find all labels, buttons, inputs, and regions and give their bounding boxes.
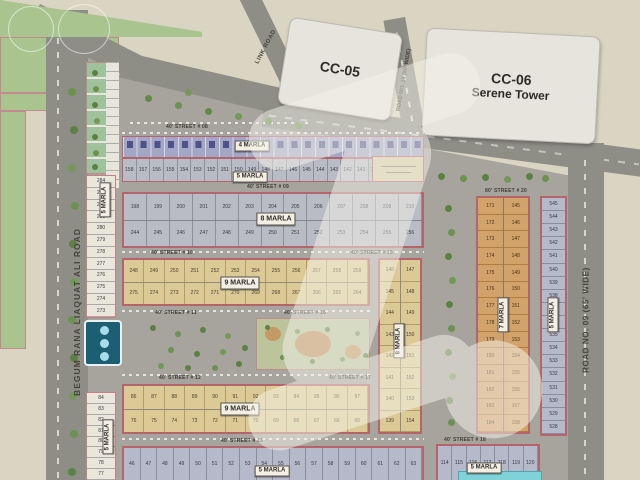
triangle-park-trees bbox=[145, 95, 152, 102]
park-path-circle bbox=[8, 6, 54, 52]
tag-9-marla-upper: 9 MARLA bbox=[220, 277, 259, 290]
plot-cell: 251 bbox=[185, 260, 205, 282]
plot-cell: 93 bbox=[266, 386, 286, 409]
street-17-label: 40' STREET # 17 bbox=[329, 375, 371, 381]
plot-cell: 264 bbox=[348, 283, 368, 305]
plot-cell: 140 bbox=[380, 389, 400, 411]
plot-cell: 532 bbox=[542, 368, 565, 381]
plot-cell: 531 bbox=[542, 382, 565, 395]
plot-cell: 544 bbox=[542, 211, 565, 224]
linear-park-trees bbox=[445, 205, 452, 212]
plot-cell: 173 bbox=[478, 231, 503, 248]
plot-cell: 256 bbox=[399, 221, 422, 247]
plot-cell: 248 bbox=[124, 260, 144, 282]
road-09-label: ROAD NO. 09 (65' WIDE) bbox=[582, 267, 591, 373]
plot-cell: 154 bbox=[178, 159, 192, 181]
plot-cell: 95 bbox=[307, 386, 327, 409]
plot-cell: 534 bbox=[542, 342, 565, 355]
plot-cell: 247 bbox=[193, 221, 216, 247]
tag-5-marla-bottom-right: 5 MARLA bbox=[467, 463, 502, 474]
tag-5-marla-left-upper: 5 MARLA bbox=[100, 183, 111, 218]
green-column-trees bbox=[92, 70, 98, 76]
plot-cell: 87 bbox=[144, 386, 164, 409]
plot-cell: 279 bbox=[87, 235, 115, 247]
tag-4-marla: 4 MARLA bbox=[235, 141, 270, 152]
plot-cell: 273 bbox=[87, 305, 115, 317]
plot-cell: 200 bbox=[170, 194, 193, 220]
tag-5-marla-row: 5 MARLA bbox=[233, 172, 268, 183]
plot-cell: 529 bbox=[542, 408, 565, 421]
plot-cell: 57 bbox=[306, 448, 323, 480]
plot-cell: 88 bbox=[165, 386, 185, 409]
plot-cell: 533 bbox=[542, 355, 565, 368]
plot-cell: 208 bbox=[353, 194, 376, 220]
plot-cell: 245 bbox=[147, 221, 170, 247]
plot-cell: 97 bbox=[348, 386, 368, 409]
plot-cell: 202 bbox=[216, 194, 239, 220]
plot-cell: 154 bbox=[401, 411, 421, 433]
plot-cell: 47 bbox=[141, 448, 158, 480]
plot-cell: 144 bbox=[380, 303, 400, 325]
street-18-label: 40' STREET # 18 bbox=[444, 437, 486, 443]
plot-cell: 198 bbox=[124, 194, 147, 220]
plot-cell: 201 bbox=[193, 194, 216, 220]
plot-cell: 156 bbox=[504, 382, 529, 399]
plot-cell: 257 bbox=[307, 260, 327, 282]
plot-cell: 276 bbox=[87, 270, 115, 282]
garden-center-bed bbox=[295, 331, 331, 357]
plot-cell: 180 bbox=[478, 348, 503, 365]
plot-cell: 147 bbox=[273, 159, 287, 181]
park-west-trees bbox=[150, 325, 156, 331]
plot-cell: 141 bbox=[355, 159, 369, 181]
plot-cell: 273 bbox=[165, 283, 185, 305]
formal-garden-trees bbox=[265, 325, 270, 330]
street-12-label: 40' STREET # 12 bbox=[159, 375, 201, 381]
plot-cell: 146 bbox=[380, 260, 400, 282]
plot-cell: 147 bbox=[504, 231, 529, 248]
plot-cell: 78 bbox=[87, 458, 115, 469]
plot-cell: 199 bbox=[147, 194, 170, 220]
plot-cell: 255 bbox=[376, 221, 399, 247]
plot-cell: 139 bbox=[380, 411, 400, 433]
tag-9-marla-lower: 9 MARLA bbox=[220, 403, 259, 416]
plot-cell: 153 bbox=[401, 389, 421, 411]
street-13-label: 40' STREET # 13 bbox=[221, 438, 263, 444]
plot-cell: 114 bbox=[438, 446, 452, 480]
plot-cell: 183 bbox=[478, 399, 503, 416]
plot-cell: 50 bbox=[190, 448, 207, 480]
plot-cell: 151 bbox=[218, 159, 232, 181]
street-08-label: 40' STREET # 08 bbox=[166, 124, 208, 130]
plot-cell: 94 bbox=[287, 386, 307, 409]
mosque-dome bbox=[100, 352, 109, 361]
block-cc06-serene-tower: CC-06 Serene Tower bbox=[421, 28, 600, 145]
plot-cell: 250 bbox=[165, 260, 185, 282]
plot-cell: 267 bbox=[287, 283, 307, 305]
plot-cell: 62 bbox=[389, 448, 406, 480]
green-plot-column bbox=[86, 62, 107, 174]
plot-cell: 172 bbox=[478, 215, 503, 232]
plot-cell: 146 bbox=[287, 159, 301, 181]
plot-cell: 143 bbox=[328, 159, 342, 181]
plot-cell: 277 bbox=[87, 258, 115, 270]
plot-cell: 176 bbox=[478, 282, 503, 299]
plot-cell: 181 bbox=[478, 365, 503, 382]
plot-cell: 74 bbox=[165, 410, 185, 433]
street-13-ticks bbox=[122, 438, 424, 440]
plot-cell: 144 bbox=[314, 159, 328, 181]
plot-cell: 540 bbox=[542, 264, 565, 277]
park-path-circle bbox=[58, 4, 110, 54]
plot-cell: 157 bbox=[504, 399, 529, 416]
community-building bbox=[372, 156, 424, 182]
plot-cell: 76 bbox=[124, 410, 144, 433]
plot-cell: 153 bbox=[191, 159, 205, 181]
plot-cell: 268 bbox=[266, 283, 286, 305]
street-15-label: 40' STREET # 15 bbox=[351, 250, 393, 256]
plot-cell: 145 bbox=[504, 198, 529, 215]
plot-cell: 48 bbox=[157, 448, 174, 480]
plot-cell: 145 bbox=[300, 159, 314, 181]
plot-cell: 149 bbox=[401, 303, 421, 325]
plot-cell: 256 bbox=[287, 260, 307, 282]
plot-cell: 58 bbox=[323, 448, 340, 480]
plot-cell: 206 bbox=[307, 194, 330, 220]
plot-cell: 184 bbox=[478, 415, 503, 432]
tag-7-marla-vertical: 7 MARLA bbox=[498, 298, 509, 333]
plot-cell: 84 bbox=[87, 393, 115, 404]
tag-5-marla-bottom: 5 MARLA bbox=[255, 466, 290, 477]
formal-garden bbox=[256, 318, 370, 370]
plot-cell: 248 bbox=[216, 221, 239, 247]
begum-rana-road-label: BEGUM RANA LIAQUAT ALI ROAD bbox=[72, 228, 82, 396]
plot-cell: 254 bbox=[353, 221, 376, 247]
plot-cell: 155 bbox=[164, 159, 178, 181]
plot-cell: 49 bbox=[174, 448, 191, 480]
plot-cell: 530 bbox=[542, 395, 565, 408]
plot-cell: 66 bbox=[327, 410, 347, 433]
tag-8-marla-vertical: 8 MARLA bbox=[394, 324, 405, 359]
roadside-trees bbox=[68, 88, 76, 96]
plot-cell: 246 bbox=[170, 221, 193, 247]
plot-cell: 182 bbox=[478, 382, 503, 399]
plot-cell: 46 bbox=[124, 448, 141, 480]
plot-cell: 73 bbox=[185, 410, 205, 433]
plot-cell: 543 bbox=[542, 224, 565, 237]
plot-cell: 174 bbox=[478, 248, 503, 265]
street-09-label: 40' STREET # 09 bbox=[247, 184, 289, 190]
plot-cell: 244 bbox=[124, 221, 147, 247]
plot-cell: 152 bbox=[205, 159, 219, 181]
plot-cell: 156 bbox=[150, 159, 164, 181]
plot-cell: 265 bbox=[327, 283, 347, 305]
plot-cell: 274 bbox=[87, 294, 115, 306]
parking-ticks-park bbox=[130, 122, 310, 124]
plot-cell: 275 bbox=[87, 282, 115, 294]
plot-cell: 75 bbox=[144, 410, 164, 433]
plot-cell: 249 bbox=[144, 260, 164, 282]
plot-cell: 210 bbox=[399, 194, 422, 220]
plot-cell: 52 bbox=[223, 448, 240, 480]
mosque-dome bbox=[100, 326, 109, 335]
plot-cell: 259 bbox=[348, 260, 368, 282]
plot-cell: 278 bbox=[87, 247, 115, 259]
plot-cell: 209 bbox=[376, 194, 399, 220]
plot-cell: 541 bbox=[542, 250, 565, 263]
tag-5-marla-left-lower: 5 MARLA bbox=[103, 420, 114, 455]
plot-cell: 147 bbox=[401, 260, 421, 282]
plot-cell: 146 bbox=[504, 215, 529, 232]
plot-cell: 258 bbox=[327, 260, 347, 282]
plot-cell: 255 bbox=[266, 260, 286, 282]
plot-cell: 83 bbox=[87, 404, 115, 415]
plot-cell: 280 bbox=[87, 223, 115, 235]
plot-cell: 96 bbox=[327, 386, 347, 409]
block-cc05: CC-05 bbox=[277, 17, 403, 122]
plot-cell: 152 bbox=[401, 368, 421, 390]
plot-cell: 528 bbox=[542, 421, 565, 434]
block-cc05-label: CC-05 bbox=[319, 58, 361, 80]
plot-cell: 149 bbox=[504, 265, 529, 282]
plot-cell: 51 bbox=[207, 448, 224, 480]
master-plan-map: BEGUM RANA LIAQUAT ALI ROAD ROAD NO. 09 … bbox=[0, 0, 640, 480]
plot-cell: 86 bbox=[124, 386, 144, 409]
street-11-label: 40' STREET # 11 bbox=[155, 310, 197, 316]
mosque bbox=[84, 320, 122, 366]
plot-cell: 157 bbox=[137, 159, 151, 181]
plot-cell: 145 bbox=[380, 282, 400, 304]
plot-cell: 67 bbox=[307, 410, 327, 433]
tag-5-marla-right-vertical: 5 MARLA bbox=[548, 298, 559, 333]
plot-cell: 175 bbox=[478, 265, 503, 282]
plot-cell: 89 bbox=[185, 386, 205, 409]
plot-cell: 65 bbox=[348, 410, 368, 433]
plot-cell: 274 bbox=[144, 283, 164, 305]
plot-cell: 539 bbox=[542, 277, 565, 290]
plot-cell: 155 bbox=[504, 365, 529, 382]
plot-cell: 77 bbox=[87, 469, 115, 480]
plot-cell: 142 bbox=[341, 159, 355, 181]
plot-cell: 148 bbox=[401, 282, 421, 304]
plot-cell: 60 bbox=[356, 448, 373, 480]
plot-cell: 252 bbox=[307, 221, 330, 247]
plot-cell: 207 bbox=[330, 194, 353, 220]
plot-cell: 59 bbox=[339, 448, 356, 480]
small-plot-column bbox=[106, 62, 119, 188]
plot-cell: 266 bbox=[307, 283, 327, 305]
plot-cell: 253 bbox=[330, 221, 353, 247]
plot-cell: 153 bbox=[504, 332, 529, 349]
street-16-label: 40' STREET # 16 bbox=[284, 310, 326, 316]
block-cc06-sublabel: Serene Tower bbox=[471, 85, 549, 103]
plot-cell: 275 bbox=[124, 283, 144, 305]
begum-road-lane-dashes bbox=[57, 30, 59, 478]
plot-cell: 68 bbox=[287, 410, 307, 433]
plot-cell: 56 bbox=[290, 448, 307, 480]
row-4-marla bbox=[122, 136, 424, 158]
plot-cell: 141 bbox=[380, 368, 400, 390]
plot-cell: 61 bbox=[372, 448, 389, 480]
mosque-dome bbox=[100, 339, 109, 348]
street-20-label: 80' STREET # 20 bbox=[485, 188, 527, 194]
plot-cell: 542 bbox=[542, 237, 565, 250]
plot-cell: 545 bbox=[542, 198, 565, 211]
plot-cell: 272 bbox=[185, 283, 205, 305]
tag-8-marla: 8 MARLA bbox=[256, 213, 295, 226]
parking-ticks-row4m bbox=[122, 132, 424, 134]
plot-cell: 171 bbox=[478, 198, 503, 215]
plot-cell: 69 bbox=[266, 410, 286, 433]
plot-cell: 63 bbox=[406, 448, 423, 480]
plot-cell: 158 bbox=[123, 159, 137, 181]
plot-cell: 154 bbox=[504, 348, 529, 365]
plot-cell: 150 bbox=[504, 282, 529, 299]
tree-strip-trees bbox=[438, 173, 445, 180]
plot-cell: 148 bbox=[504, 248, 529, 265]
linear-park-strip bbox=[0, 111, 26, 349]
plot-cell: 179 bbox=[478, 332, 503, 349]
plot-cell: 158 bbox=[504, 415, 529, 432]
garden-bed bbox=[345, 345, 361, 359]
street-10-label: 40' STREET # 10 bbox=[151, 250, 193, 256]
